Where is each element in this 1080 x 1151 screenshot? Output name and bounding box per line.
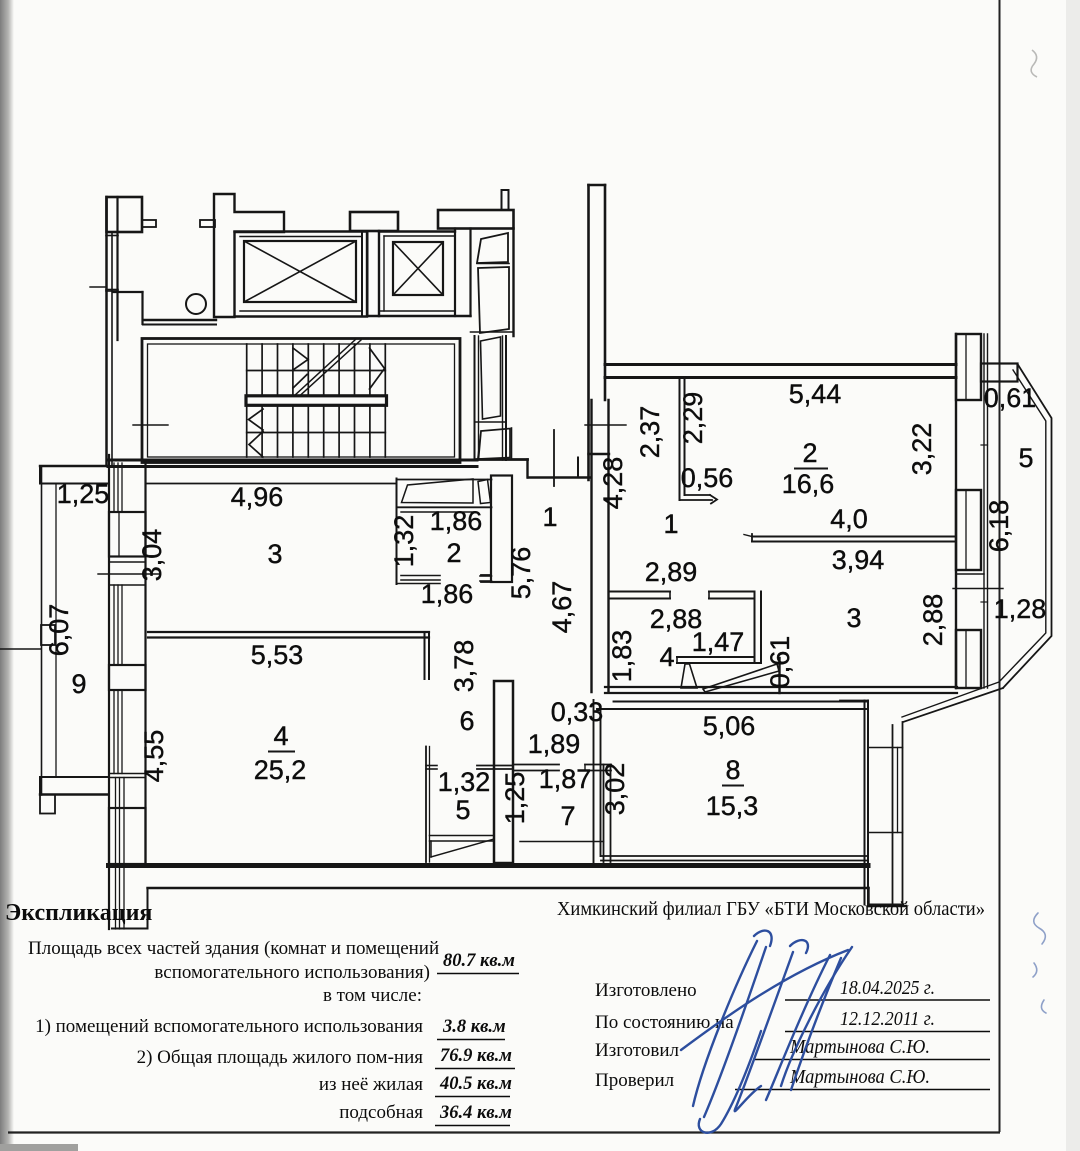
svg-text:Проверил: Проверил <box>595 1070 675 1091</box>
svg-text:4,28: 4,28 <box>598 457 628 510</box>
svg-text:2,88: 2,88 <box>918 594 948 647</box>
svg-text:из неё жилая: из неё жилая <box>319 1074 423 1095</box>
svg-text:4,0: 4,0 <box>830 504 868 534</box>
svg-text:2) Общая площадь жилого пом-ни: 2) Общая площадь жилого пом-ния <box>137 1047 424 1068</box>
svg-text:25,2: 25,2 <box>254 755 307 785</box>
svg-text:По состоянию на: По состоянию на <box>595 1012 734 1033</box>
svg-text:4,96: 4,96 <box>231 482 284 512</box>
svg-text:1: 1 <box>663 509 678 539</box>
svg-text:2,37: 2,37 <box>635 406 665 459</box>
svg-text:80.7 кв.м: 80.7 кв.м <box>443 951 515 971</box>
svg-text:Химкинский филиал ГБУ «БТИ Мос: Химкинский филиал ГБУ «БТИ Московской об… <box>557 898 985 920</box>
svg-text:1,28: 1,28 <box>994 594 1047 624</box>
svg-text:40.5 кв.м: 40.5 кв.м <box>439 1074 512 1094</box>
svg-text:1,83: 1,83 <box>607 630 637 683</box>
svg-text:5: 5 <box>455 795 470 825</box>
svg-text:9: 9 <box>71 669 86 699</box>
svg-text:3,78: 3,78 <box>449 640 479 693</box>
svg-text:1,86: 1,86 <box>421 579 474 609</box>
svg-text:6: 6 <box>459 706 474 736</box>
svg-text:3,94: 3,94 <box>832 545 885 575</box>
svg-text:16,6: 16,6 <box>782 469 835 499</box>
svg-text:3,04: 3,04 <box>137 529 167 582</box>
svg-text:1,32: 1,32 <box>389 515 419 568</box>
svg-text:76.9 кв.м: 76.9 кв.м <box>440 1046 512 1066</box>
svg-text:8: 8 <box>725 755 740 785</box>
svg-text:Изготовил: Изготовил <box>595 1040 679 1061</box>
svg-text:36.4 кв.м: 36.4 кв.м <box>439 1103 512 1123</box>
svg-text:3.8 кв.м: 3.8 кв.м <box>442 1017 506 1037</box>
svg-text:4,67: 4,67 <box>547 581 577 634</box>
svg-text:3,02: 3,02 <box>600 763 630 816</box>
svg-text:в том числе:: в том числе: <box>323 985 422 1006</box>
svg-text:1,25: 1,25 <box>57 479 110 509</box>
svg-text:0,33: 0,33 <box>551 697 604 727</box>
svg-text:5,76: 5,76 <box>506 547 536 600</box>
svg-text:3,22: 3,22 <box>907 423 937 476</box>
svg-text:4: 4 <box>659 642 674 672</box>
svg-text:1,89: 1,89 <box>528 729 581 759</box>
svg-text:Изготовлено: Изготовлено <box>595 980 697 1001</box>
svg-text:6,18: 6,18 <box>984 500 1014 553</box>
svg-text:7: 7 <box>560 801 575 831</box>
svg-text:вспомогательного использования: вспомогательного использования) <box>154 962 430 983</box>
svg-text:1,32: 1,32 <box>438 767 491 797</box>
svg-text:Площадь всех частей здания (ко: Площадь всех частей здания (комнат и пом… <box>28 938 439 959</box>
svg-text:2: 2 <box>446 538 461 568</box>
svg-text:3: 3 <box>846 603 861 633</box>
svg-text:4,55: 4,55 <box>139 730 169 783</box>
svg-text:5,06: 5,06 <box>703 711 756 741</box>
svg-text:Экспликация: Экспликация <box>5 900 152 926</box>
svg-text:0,56: 0,56 <box>681 463 734 493</box>
svg-text:5: 5 <box>1018 443 1033 473</box>
svg-text:Мартынова С.Ю.: Мартынова С.Ю. <box>789 1037 930 1058</box>
svg-text:2,89: 2,89 <box>645 557 698 587</box>
svg-text:3: 3 <box>267 539 282 569</box>
svg-text:0,61: 0,61 <box>765 636 795 689</box>
svg-text:1) помещений вспомогательного: 1) помещений вспомогательного использова… <box>35 1016 423 1037</box>
svg-text:2: 2 <box>802 438 817 468</box>
svg-text:5,44: 5,44 <box>789 379 842 409</box>
svg-text:1,86: 1,86 <box>430 506 483 536</box>
svg-text:12.12.2011 г.: 12.12.2011 г. <box>840 1009 935 1030</box>
svg-text:0,61: 0,61 <box>984 383 1037 413</box>
svg-text:5,53: 5,53 <box>251 640 304 670</box>
svg-text:подсобная: подсобная <box>339 1102 423 1123</box>
svg-text:15,3: 15,3 <box>706 791 759 821</box>
svg-text:18.04.2025 г.: 18.04.2025 г. <box>840 978 935 999</box>
svg-text:2,29: 2,29 <box>678 392 708 445</box>
svg-text:1,47: 1,47 <box>692 627 745 657</box>
svg-text:Мартынова С.Ю.: Мартынова С.Ю. <box>789 1067 930 1088</box>
svg-text:4: 4 <box>273 721 288 751</box>
svg-text:1: 1 <box>542 502 557 532</box>
svg-text:1,87: 1,87 <box>539 764 592 794</box>
svg-text:6,07: 6,07 <box>44 604 74 657</box>
svg-text:1,25: 1,25 <box>500 772 530 825</box>
